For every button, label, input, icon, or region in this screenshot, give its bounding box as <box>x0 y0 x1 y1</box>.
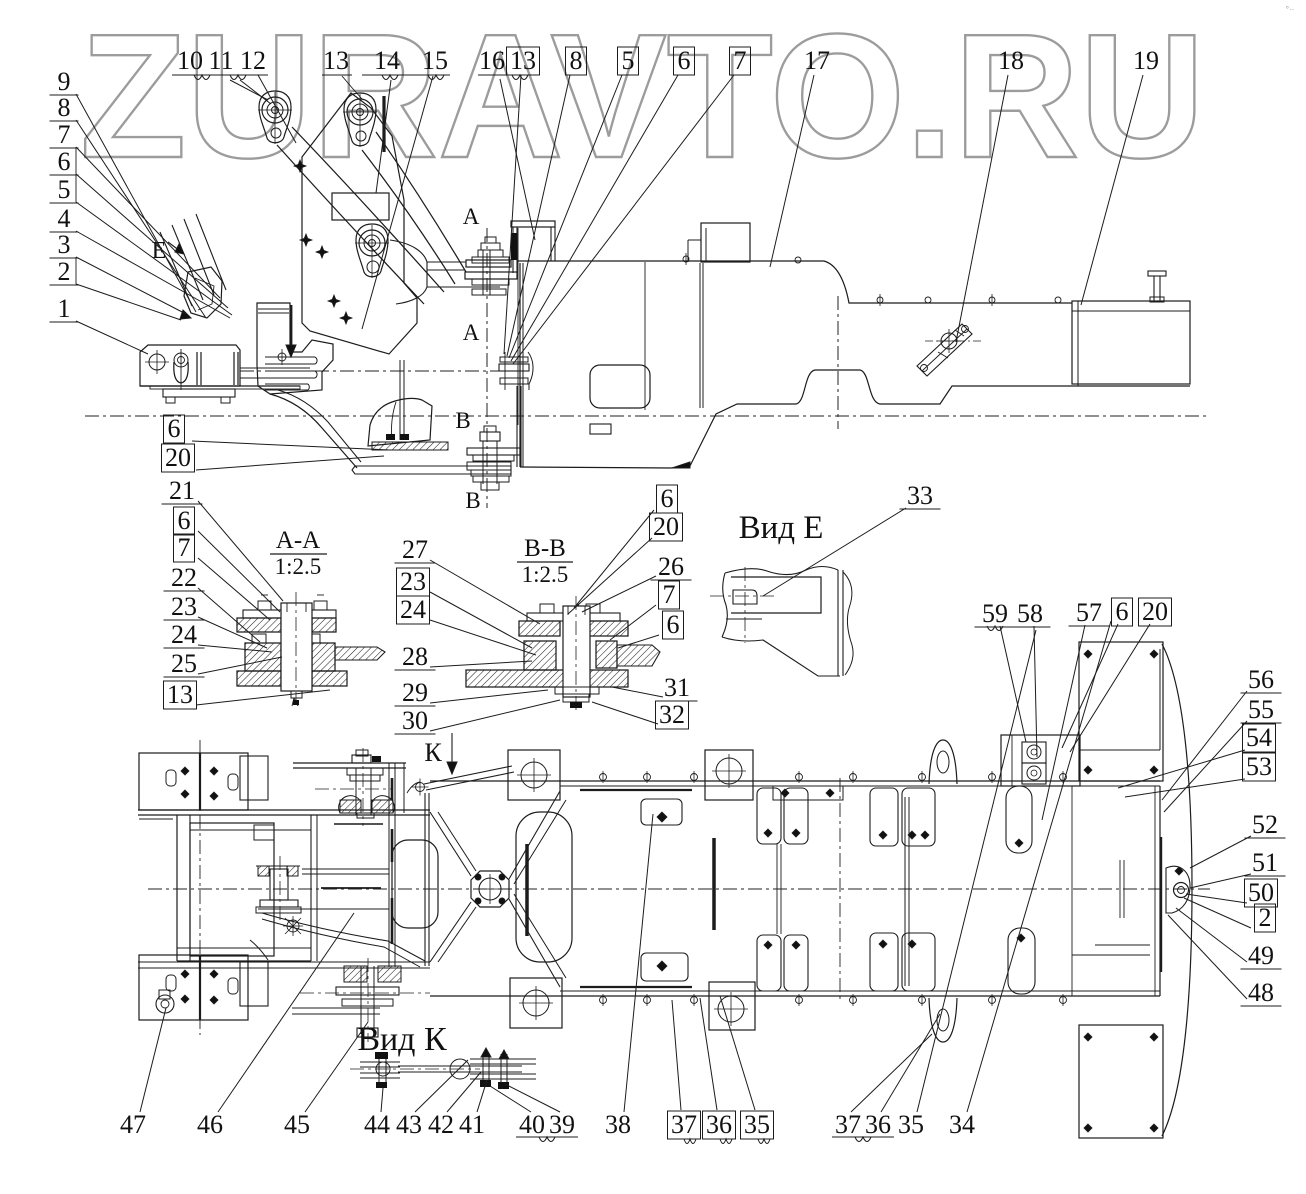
svg-text:7: 7 <box>663 580 676 609</box>
svg-text:35: 35 <box>898 1110 924 1139</box>
svg-text:30: 30 <box>402 706 428 735</box>
svg-text:53: 53 <box>1246 752 1272 781</box>
svg-text:36: 36 <box>706 1110 732 1139</box>
svg-text:6: 6 <box>178 506 191 535</box>
svg-text:4: 4 <box>58 204 71 233</box>
svg-text:49: 49 <box>1248 941 1274 970</box>
svg-text:20: 20 <box>653 512 679 541</box>
svg-text:22: 22 <box>171 563 197 592</box>
svg-text:2: 2 <box>58 257 71 286</box>
svg-text:24: 24 <box>171 620 197 649</box>
svg-text:20: 20 <box>165 443 191 472</box>
svg-text:5: 5 <box>622 46 635 75</box>
svg-text:А: А <box>463 204 480 229</box>
svg-text:В: В <box>455 408 470 433</box>
svg-text:13: 13 <box>167 680 193 709</box>
svg-text:17: 17 <box>804 46 830 75</box>
svg-text:24: 24 <box>400 595 426 624</box>
svg-text:7: 7 <box>178 533 191 562</box>
svg-text:14: 14 <box>374 46 400 75</box>
svg-text:58: 58 <box>1017 599 1043 628</box>
svg-text:34: 34 <box>949 1110 975 1139</box>
svg-text:37: 37 <box>671 1110 697 1139</box>
svg-text:ZURAVTO.RU: ZURAVTO.RU <box>80 0 1205 195</box>
svg-text:23: 23 <box>400 567 426 596</box>
svg-text:6: 6 <box>168 414 181 443</box>
svg-text:23: 23 <box>171 592 197 621</box>
svg-text:40: 40 <box>519 1110 545 1139</box>
svg-text:А: А <box>463 320 480 345</box>
svg-text:36: 36 <box>865 1110 891 1139</box>
svg-text:54: 54 <box>1246 723 1272 752</box>
svg-text:6: 6 <box>661 484 674 513</box>
svg-text:55: 55 <box>1248 695 1274 724</box>
svg-text:А-А: А-А <box>276 527 320 554</box>
svg-text:48: 48 <box>1248 978 1274 1007</box>
svg-text:7: 7 <box>58 120 71 149</box>
svg-text:57: 57 <box>1076 598 1102 627</box>
svg-text:7: 7 <box>734 46 747 75</box>
svg-text:32: 32 <box>659 700 685 729</box>
svg-text:6: 6 <box>678 46 691 75</box>
svg-text:43: 43 <box>396 1110 422 1139</box>
svg-text:28: 28 <box>402 642 428 671</box>
svg-text:10: 10 <box>177 46 203 75</box>
svg-text:2: 2 <box>1259 903 1272 932</box>
svg-text:29: 29 <box>402 678 428 707</box>
svg-text:8: 8 <box>58 93 71 122</box>
svg-text:25: 25 <box>171 649 197 678</box>
svg-text:В-В: В-В <box>524 535 566 562</box>
svg-text:20: 20 <box>1142 597 1168 626</box>
svg-text:1:2.5: 1:2.5 <box>275 554 322 579</box>
svg-text:16: 16 <box>479 46 505 75</box>
svg-text:3: 3 <box>58 230 71 259</box>
svg-text:15: 15 <box>422 46 448 75</box>
svg-text:35: 35 <box>744 1110 770 1139</box>
svg-text:18: 18 <box>998 46 1024 75</box>
svg-text:13: 13 <box>510 46 536 75</box>
svg-text:К: К <box>424 738 442 767</box>
svg-text:31: 31 <box>664 673 690 702</box>
svg-text:11: 11 <box>208 46 233 75</box>
svg-text:6: 6 <box>58 147 71 176</box>
svg-text:33: 33 <box>907 481 933 510</box>
svg-text:47: 47 <box>120 1110 146 1139</box>
svg-text:56: 56 <box>1248 665 1274 694</box>
svg-text:45: 45 <box>284 1110 310 1139</box>
svg-text:Вид К: Вид К <box>357 1021 447 1058</box>
svg-text:5: 5 <box>58 175 71 204</box>
svg-text:37: 37 <box>835 1110 861 1139</box>
svg-text:19: 19 <box>1133 46 1159 75</box>
svg-text:51: 51 <box>1252 848 1278 877</box>
svg-text:59: 59 <box>982 599 1008 628</box>
svg-text:42: 42 <box>428 1110 454 1139</box>
svg-text:41: 41 <box>459 1110 485 1139</box>
svg-text:39: 39 <box>549 1110 575 1139</box>
svg-text:1:2.5: 1:2.5 <box>522 562 569 587</box>
svg-text:6: 6 <box>1116 597 1129 626</box>
svg-text:13: 13 <box>323 46 349 75</box>
svg-text:26: 26 <box>658 552 684 581</box>
svg-text:21: 21 <box>169 476 195 505</box>
svg-text:8: 8 <box>570 46 583 75</box>
svg-text:27: 27 <box>402 535 428 564</box>
svg-text:12: 12 <box>240 46 266 75</box>
svg-text:°··: °·· <box>1286 5 1295 14</box>
svg-text:6: 6 <box>667 610 680 639</box>
svg-text:38: 38 <box>605 1110 631 1139</box>
svg-text:44: 44 <box>364 1110 390 1139</box>
svg-text:Вид Е: Вид Е <box>739 510 824 546</box>
svg-text:9: 9 <box>58 67 71 96</box>
svg-text:52: 52 <box>1252 810 1278 839</box>
svg-text:1: 1 <box>58 294 71 323</box>
svg-text:В: В <box>465 488 480 513</box>
svg-text:46: 46 <box>197 1110 223 1139</box>
